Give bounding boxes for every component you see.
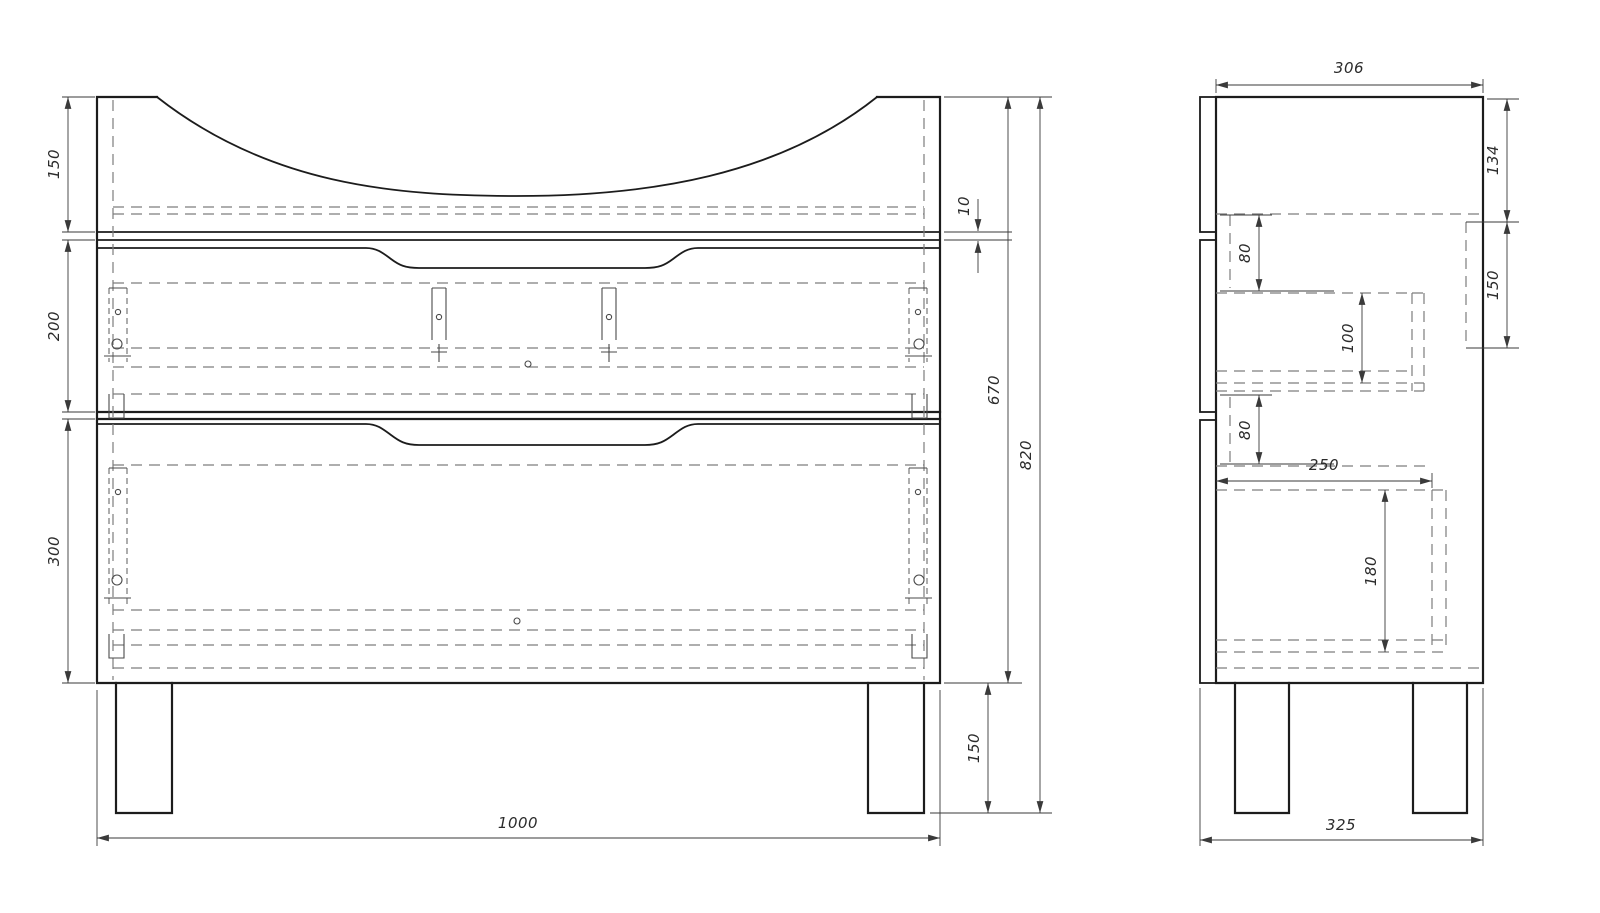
side-drawer2-front-edge — [1200, 420, 1216, 683]
side-view: 306 134 150 80 100 80 — [1200, 59, 1519, 846]
drawer1-bracket-left — [104, 288, 131, 418]
hidden-drawer2-box — [1216, 397, 1483, 668]
extension-lines — [944, 232, 1012, 240]
dim-front-drawer2-height: 300 — [45, 419, 95, 683]
dim-label: 820 — [1017, 440, 1035, 470]
front-legs — [116, 683, 924, 813]
hidden-side-panels — [113, 100, 924, 680]
dim-front-top-gap: 10 — [944, 196, 1012, 273]
bracket-body — [431, 288, 447, 362]
dim-side-depth-bottom: 325 — [1200, 688, 1483, 846]
dim-side-drawer1-box-height: 100 — [1339, 293, 1362, 383]
bracket-rails — [109, 468, 127, 604]
dim-front-body-height: 670 — [944, 97, 1052, 683]
side-drawer1-front-edge — [1200, 240, 1216, 412]
drawer2-center-hole — [514, 618, 520, 624]
drawer1-bracket-mid-right — [601, 288, 617, 362]
top-gap-lines — [97, 232, 940, 240]
dim-side-drawer2-box-depth: 250 — [1216, 456, 1432, 488]
side-body-outline — [1216, 97, 1483, 683]
bracket-rails — [109, 288, 127, 362]
screw-hole — [436, 314, 441, 319]
drawer2-handle-profile — [97, 424, 940, 445]
hidden-horizontal-lines — [113, 207, 924, 668]
dim-label: 1000 — [498, 814, 538, 832]
extension-lines — [62, 97, 95, 232]
dim-side-depth-top: 306 — [1216, 59, 1483, 93]
side-top-panel-edge — [1200, 97, 1216, 232]
screw-hole — [115, 489, 120, 494]
dim-label: 80 — [1236, 243, 1254, 263]
drawer1-bracket-mid-left — [431, 288, 447, 362]
dim-label: 150 — [965, 733, 983, 763]
dim-label: 325 — [1326, 816, 1356, 834]
dim-label: 150 — [45, 149, 63, 179]
dim-label: 180 — [1362, 556, 1380, 586]
drawer1-handle-profile — [97, 248, 940, 268]
drawing-svg: 150 200 300 10 670 820 — [0, 0, 1600, 913]
drawer1-bracket-right — [905, 288, 932, 418]
front-view: 150 200 300 10 670 820 — [45, 97, 1052, 846]
dim-side-hanger-height: 150 — [1466, 222, 1519, 348]
drawer-divider-lines — [97, 412, 940, 419]
cabinet-outline — [97, 97, 940, 683]
drawer1-center-hole — [525, 361, 531, 367]
dim-label: 670 — [985, 375, 1003, 405]
side-legs — [1235, 683, 1467, 813]
screw-hole — [914, 575, 924, 585]
bracket-body — [601, 288, 617, 362]
dim-label: 10 — [955, 196, 973, 216]
dim-label: 80 — [1236, 420, 1254, 440]
dim-label: 134 — [1484, 145, 1502, 175]
hidden-drawer1-box — [1216, 215, 1424, 391]
dim-side-hanger-offset: 134 — [1484, 99, 1519, 222]
dim-label: 200 — [45, 311, 63, 341]
screw-hole — [606, 314, 611, 319]
dim-side-drawer1-top-offset: 80 — [1220, 215, 1334, 291]
screw-hole — [915, 309, 920, 314]
extension-lines — [1216, 79, 1483, 93]
screw-hole — [115, 309, 120, 314]
dim-label: 150 — [1484, 270, 1502, 300]
dim-front-top-section-height: 150 — [45, 97, 95, 232]
dim-label: 300 — [45, 536, 63, 566]
dim-front-width: 1000 — [97, 690, 940, 846]
dim-front-total-height: 820 — [930, 97, 1052, 813]
extension-lines — [62, 419, 95, 683]
dim-label: 100 — [1339, 323, 1357, 353]
screw-hole — [112, 575, 122, 585]
dim-side-drawer2-box-height: 180 — [1362, 490, 1385, 652]
technical-drawing-canvas: 150 200 300 10 670 820 — [0, 0, 1600, 913]
screw-hole — [914, 339, 924, 349]
dim-front-drawer1-height: 200 — [45, 240, 95, 412]
sink-top-curve — [157, 97, 877, 196]
screw-hole — [915, 489, 920, 494]
dim-side-drawer2-top-offset: 80 — [1220, 395, 1334, 464]
dim-front-leg-height: 150 — [965, 683, 988, 813]
dim-label: 306 — [1334, 59, 1364, 77]
extension-lines — [62, 240, 95, 412]
dim-label: 250 — [1309, 456, 1339, 474]
